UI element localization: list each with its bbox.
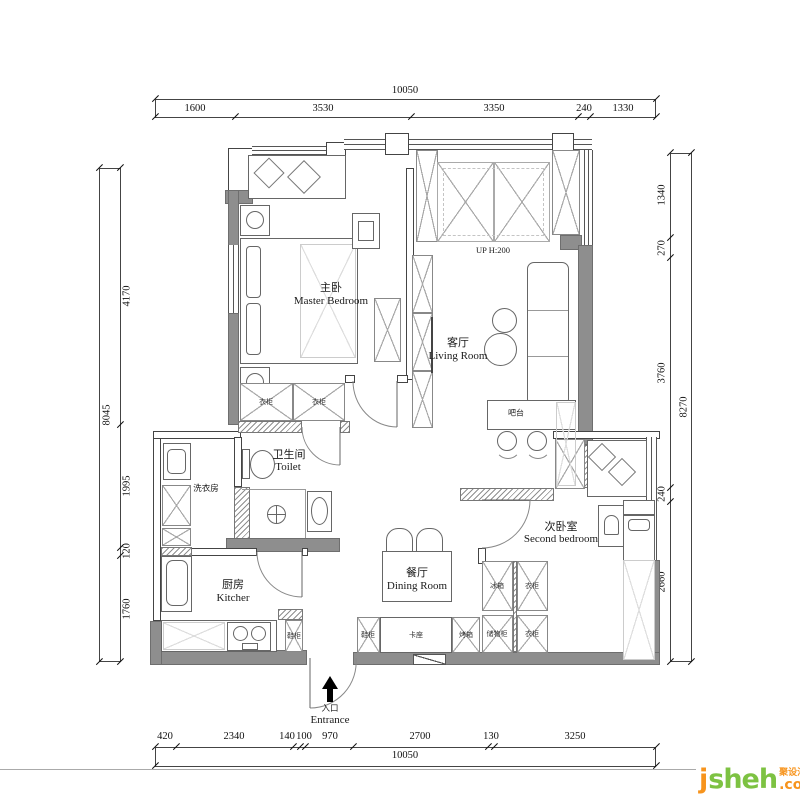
platform-cabinet <box>416 150 438 242</box>
dim-line-left-total <box>99 168 100 662</box>
wardrobe-label: 衣柜 <box>525 629 539 639</box>
shaft <box>552 150 580 235</box>
stove-panel <box>242 643 258 650</box>
entrance-arrow-stem <box>327 689 333 702</box>
room-label-kitchen-zh: 厨房 <box>222 576 244 592</box>
dim-top-seg: 1600 <box>185 103 206 114</box>
footer-rule <box>0 769 696 770</box>
entrance-label-zh: 入口 <box>321 702 338 714</box>
headboard <box>623 500 655 515</box>
dim-bottom-seg: 2340 <box>224 731 245 742</box>
door-kitchen <box>255 550 304 599</box>
kitchen-sink <box>166 560 188 606</box>
entrance-label-en: Entrance <box>310 714 349 726</box>
door-toilet <box>300 425 342 467</box>
door-master-bedroom <box>349 375 401 429</box>
hatched-wall <box>238 421 302 433</box>
dim-right-seg: 240 <box>657 486 668 502</box>
column <box>385 133 409 155</box>
shoe-cabinet-label: 鞋柜 <box>287 631 301 641</box>
hatched-wall <box>161 547 192 556</box>
dim-bottom-seg: 3250 <box>565 731 586 742</box>
dim-bottom-seg: 2700 <box>410 731 431 742</box>
wardrobe-label: 衣柜 <box>312 397 326 407</box>
wall <box>228 190 239 247</box>
dim-tick <box>653 743 660 750</box>
logo-tld: .com <box>779 778 800 792</box>
blanket <box>623 560 655 660</box>
toilet-tank <box>242 449 250 479</box>
room-label-master-zh: 主卧 <box>320 279 342 295</box>
site-logo: jsheh 聚设汇 .com <box>699 766 800 793</box>
storage-cabinet-label: 储物柜 <box>487 629 508 639</box>
dim-tick <box>117 658 124 665</box>
window <box>584 150 593 245</box>
dim-bottom-seg: 100 <box>296 731 312 742</box>
room-label-living-en: Living Room <box>429 350 488 362</box>
washing-machine <box>162 485 191 526</box>
toilet-bowl <box>250 450 275 479</box>
coffee-table <box>484 333 517 366</box>
dim-left-seg: 4170 <box>122 286 133 307</box>
dim-ext <box>655 747 656 766</box>
wall <box>153 431 161 621</box>
shower-partition <box>242 489 306 490</box>
wall <box>228 313 239 425</box>
room-label-toilet-en: Toilet <box>275 461 301 473</box>
wardrobe <box>374 298 401 362</box>
dim-tick <box>653 113 660 120</box>
dim-line-top-total <box>155 99 656 100</box>
room-label-second-en: Second bedroom <box>524 533 598 545</box>
logo-first-letter: j <box>699 766 708 793</box>
burner <box>233 626 248 641</box>
dim-ext <box>670 661 691 662</box>
wall <box>150 650 307 665</box>
wardrobe-label: 衣柜 <box>259 397 273 407</box>
platform-grid <box>443 168 544 236</box>
laundry-sink-basin <box>167 449 186 474</box>
entrance-arrow <box>322 676 338 689</box>
dim-line-bottom-segments <box>155 747 656 748</box>
dim-left-seg: 1995 <box>122 476 133 497</box>
hatched-wall <box>234 487 250 540</box>
lamp <box>246 211 264 229</box>
room-label-dining-en: Dining Room <box>387 580 447 592</box>
pillow <box>246 246 261 298</box>
platform-label: UP H:200 <box>476 245 510 255</box>
laundry-cabinet <box>162 528 191 546</box>
dim-line-bottom-total <box>155 766 656 767</box>
hatched-wall <box>278 609 303 620</box>
bar-stool <box>497 431 517 451</box>
tv-cabinet <box>412 255 433 313</box>
bar-label: 吧台 <box>508 408 524 419</box>
dim-line-right-total <box>691 153 692 662</box>
wall <box>353 652 660 665</box>
dim-left-total: 8045 <box>102 405 113 426</box>
room-label-second-zh: 次卧室 <box>545 518 578 534</box>
oven-label: 烤箱 <box>459 630 473 640</box>
window <box>252 146 328 155</box>
dim-top-seg: 240 <box>576 103 592 114</box>
dim-tick <box>688 658 695 665</box>
sofa <box>527 262 569 406</box>
dim-line-top-segments <box>155 117 656 118</box>
booth-seat-label: 卡座 <box>409 630 423 640</box>
kitchen-counter-detail <box>163 622 225 650</box>
dim-right-total: 8270 <box>679 397 690 418</box>
dim-line-left-segments <box>120 168 121 662</box>
dim-ext <box>655 99 656 117</box>
shoe-cabinet-label: 鞋柜 <box>361 630 375 640</box>
dim-bottom-total: 10050 <box>392 750 418 761</box>
dim-tick <box>653 95 660 102</box>
fridge-label: 冰箱 <box>490 581 504 591</box>
desk-chair <box>604 515 619 535</box>
dim-bottom-seg: 140 <box>279 731 295 742</box>
tv-cabinet <box>412 313 433 371</box>
dim-top-total: 10050 <box>392 85 418 96</box>
wall <box>578 245 593 445</box>
door-second-bedroom <box>480 498 532 550</box>
dim-left-seg: 1760 <box>122 599 133 620</box>
dim-right-seg: 3760 <box>657 363 668 384</box>
dim-top-seg: 3350 <box>484 103 505 114</box>
tv <box>431 317 433 373</box>
pillow <box>628 519 650 531</box>
floor-drain <box>267 505 286 524</box>
bar-cabinet <box>556 402 576 486</box>
shower-partition <box>305 489 306 538</box>
wall <box>153 431 241 439</box>
logo-rest: sheh <box>708 766 777 793</box>
dim-line-right-segments <box>670 153 671 662</box>
dim-top-seg: 1330 <box>613 103 634 114</box>
coffee-table <box>492 308 517 333</box>
room-label-living-zh: 客厅 <box>447 334 469 350</box>
bar-stool <box>527 431 547 451</box>
sink-basin <box>311 497 328 525</box>
dim-bottom-seg: 420 <box>157 731 173 742</box>
room-label-dining-zh: 餐厅 <box>406 564 428 580</box>
dim-top-seg: 3530 <box>313 103 334 114</box>
floorplan-canvas: 10050 1600 3530 3350 240 1330 420 2340 1… <box>0 0 800 800</box>
room-label-laundry-zh: 洗衣房 <box>193 482 219 494</box>
threshold <box>413 654 446 665</box>
wardrobe-label: 衣柜 <box>525 581 539 591</box>
dim-bottom-seg: 970 <box>322 731 338 742</box>
pillow <box>246 303 261 355</box>
dim-ext <box>99 661 120 662</box>
tv-cabinet <box>412 371 433 428</box>
room-label-kitchen-en: Kitcher <box>217 592 250 604</box>
dresser-stool <box>358 221 374 241</box>
room-label-master-en: Master Bedroom <box>294 295 368 307</box>
dim-right-seg: 270 <box>657 240 668 256</box>
window <box>228 245 239 315</box>
wall <box>234 437 242 487</box>
dim-right-seg: 1340 <box>657 185 668 206</box>
burner <box>251 626 266 641</box>
dim-bottom-seg: 130 <box>483 731 499 742</box>
